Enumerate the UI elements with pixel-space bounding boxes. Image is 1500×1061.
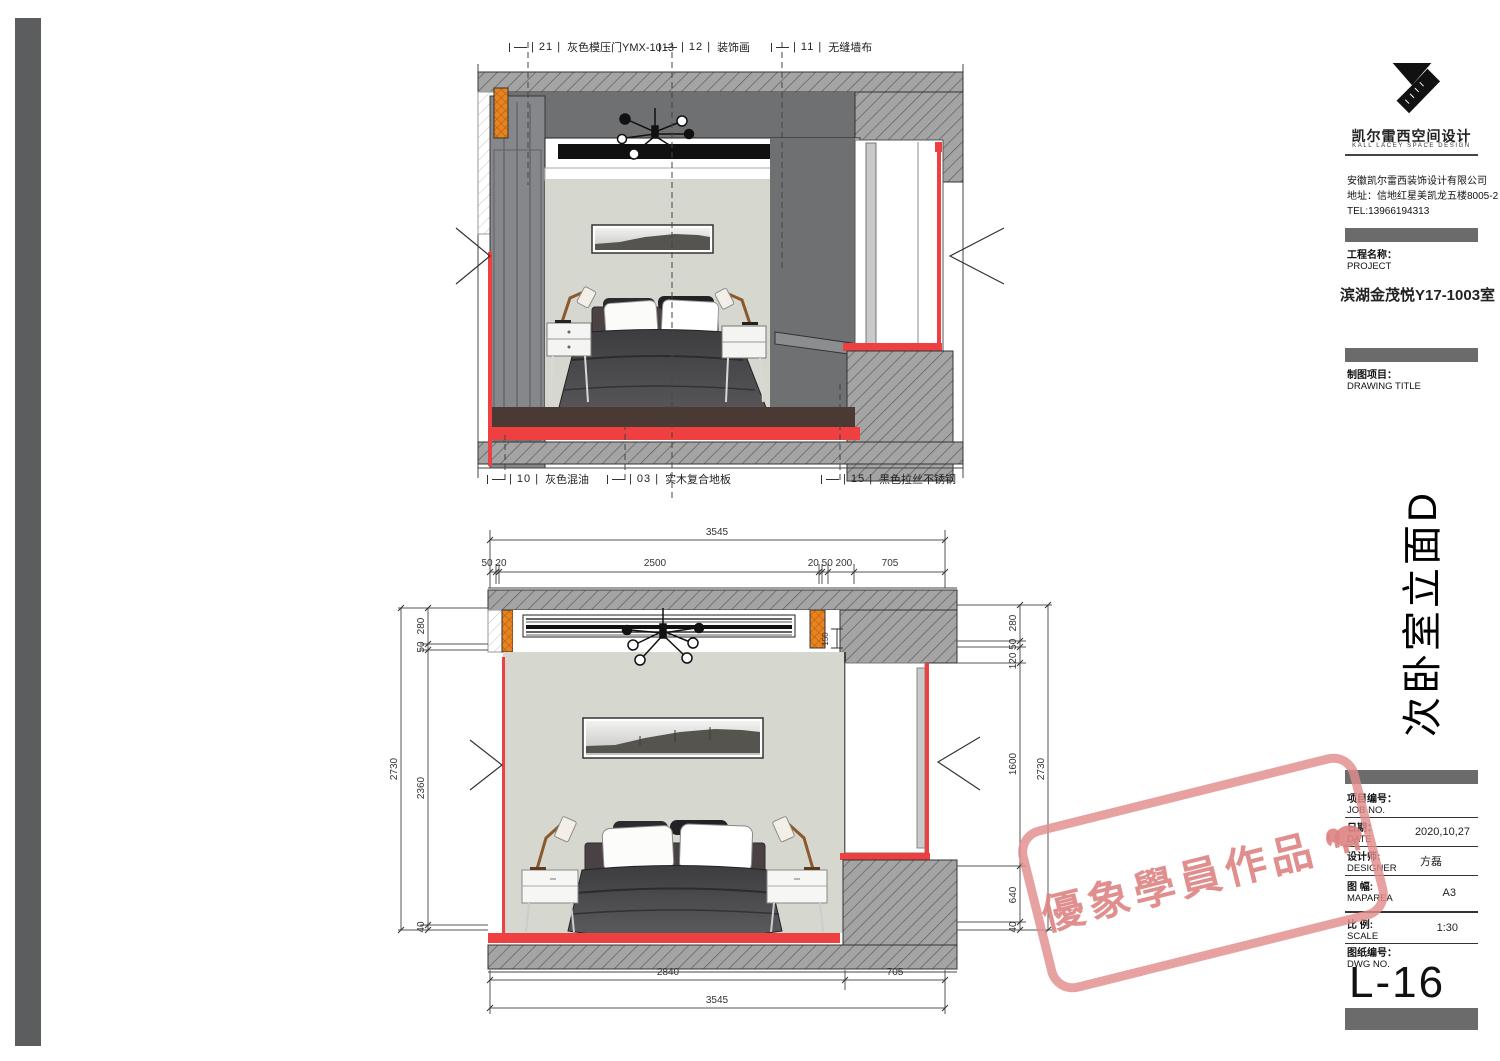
dim-150-label: 150	[821, 632, 830, 646]
callout-tick	[492, 479, 505, 480]
callout-tick	[514, 47, 527, 48]
upper-picture	[592, 225, 713, 253]
section-bar	[1345, 1008, 1478, 1030]
section-bar	[1345, 348, 1478, 362]
dim-top-total: 3545	[706, 527, 729, 538]
callout-21: | 21 | 灰色模压门YMX-1013	[514, 39, 674, 55]
callout-15: | 15 | 黑色拉丝不锈钢	[826, 471, 956, 487]
lower-window	[845, 663, 929, 858]
designer-value: 方磊	[1420, 853, 1442, 869]
divider	[1345, 154, 1478, 156]
callout-12: | 12 | 装饰画	[664, 39, 750, 55]
dim-left-d: 40	[416, 921, 427, 933]
lower-picture	[583, 718, 763, 758]
dim-bottom-a: 2840	[657, 967, 680, 978]
lower-window-red-trim	[925, 663, 929, 858]
lower-sill-red-band	[840, 853, 930, 860]
dim-seg-b: 2500	[644, 558, 667, 569]
lower-elevation-drawing: 150	[390, 518, 1060, 1023]
project-label-cn: 工程名称：	[1347, 246, 1397, 261]
callout-label: 黑色拉丝不锈钢	[879, 471, 956, 487]
company-info: 安徽凯尔雷西装饰设计有限公司 地址：信地红星美凯龙五楼8005-2 TEL:13…	[1347, 174, 1498, 219]
upper-top-wall-hatch	[478, 72, 963, 92]
callout-03: | 03 | 实木复合地板	[612, 471, 731, 487]
drawing-title-vertical: 次卧室立面D	[1390, 490, 1448, 737]
upper-window-red-trim	[937, 152, 941, 347]
dim-left-total: 2730	[390, 757, 400, 780]
upper-window	[855, 140, 943, 352]
dim-seg-a: 50 20	[481, 558, 506, 569]
dim-right-b: 120 50	[1008, 638, 1019, 669]
lower-left-plaster	[488, 610, 502, 652]
elephant-icon	[1319, 807, 1371, 869]
drawing-title-label-cn: 制图项目：	[1347, 366, 1421, 381]
callout-number: | 12 |	[681, 41, 711, 53]
lower-left-red-trim	[502, 657, 505, 933]
maparea-value: A3	[1443, 887, 1456, 899]
callout-label: 装饰画	[717, 39, 750, 55]
section-bar	[1345, 770, 1478, 784]
dim-right-c: 1600	[1008, 752, 1019, 775]
lower-bottom-right-hatch	[843, 860, 957, 945]
dim-bottom-b: 705	[887, 967, 904, 978]
upper-sill-red-band	[843, 343, 942, 351]
stamp-text: 優象學員作品	[1035, 815, 1323, 942]
callout-number: | 21 |	[531, 41, 561, 53]
upper-bottom-wall-hatch	[478, 442, 963, 464]
dim-left-c: 2360	[416, 776, 427, 799]
dim-left-a: 280	[416, 617, 427, 634]
callout-tick	[612, 479, 625, 480]
scale-value: 1:30	[1437, 922, 1458, 934]
lower-top-wall-hatch	[488, 590, 957, 610]
dim-right-total: 2730	[1036, 757, 1047, 780]
date-value: 2020,10,27	[1415, 826, 1470, 838]
company-tel: TEL:13966194313	[1347, 204, 1498, 219]
company-address: 地址：信地红星美凯龙五楼8005-2	[1347, 189, 1498, 204]
callout-label: 无缝墙布	[828, 39, 872, 55]
upper-left-orange-detail	[494, 88, 508, 138]
project-name: 滨湖金茂悦Y17-1003室	[1340, 284, 1500, 305]
dim-left-b: 50	[416, 641, 427, 653]
dim-bottom-total: 3545	[706, 995, 729, 1006]
callout-label: 灰色混油	[545, 471, 589, 487]
callout-number: | 15 |	[843, 473, 873, 485]
binding-edge-bar	[15, 18, 41, 1046]
lower-floor-red-band	[488, 933, 840, 943]
dim-right-a: 280	[1008, 614, 1019, 631]
callout-tick	[776, 47, 789, 48]
drawing-title-label-en: DRAWING TITLE	[1347, 381, 1421, 392]
callout-number: | 10 |	[509, 473, 539, 485]
lower-bottom-wall-hatch	[488, 945, 957, 969]
dwg-number: L-16	[1349, 958, 1445, 1008]
company-name: 安徽凯尔雷西装饰设计有限公司	[1347, 174, 1498, 189]
callout-number: | 11 |	[793, 41, 822, 53]
callout-label: 灰色模压门YMX-1013	[567, 39, 674, 55]
dim-seg-c: 20 50 200	[808, 558, 853, 569]
callout-tick	[664, 47, 677, 48]
callout-10: | 10 | 灰色混油	[492, 471, 589, 487]
upper-elevation-drawing	[450, 30, 1010, 520]
callout-number: | 03 |	[629, 473, 659, 485]
upper-left-red-trim	[488, 252, 492, 466]
callout-tick	[826, 479, 839, 480]
section-bar	[1345, 228, 1478, 242]
callout-label: 实木复合地板	[665, 471, 731, 487]
company-logo-icon	[1383, 60, 1441, 122]
dim-seg-d: 705	[882, 558, 899, 569]
upper-floor-red-band	[490, 427, 860, 440]
callout-11: | 11 | 无缝墙布	[776, 39, 872, 55]
scale-label-en: SCALE	[1347, 931, 1378, 942]
upper-right-wall	[770, 138, 855, 407]
watermark-stamp: 優象學員作品	[1013, 748, 1394, 998]
lower-left-orange-detail	[502, 610, 513, 652]
drawing-sheet: | 21 | 灰色模压门YMX-1013 | 12 | 装饰画 | 11 | 无…	[0, 0, 1500, 1061]
dim-right-d: 640	[1008, 886, 1019, 903]
lower-right-wall-hatch	[840, 610, 957, 663]
project-label-en: PROJECT	[1347, 261, 1397, 272]
brand-name-en: KALL LACEY SPACE DESIGN	[1345, 143, 1478, 149]
dwg-label-cn: 图纸编号：	[1347, 944, 1397, 959]
dim-right-e: 40	[1008, 921, 1019, 933]
